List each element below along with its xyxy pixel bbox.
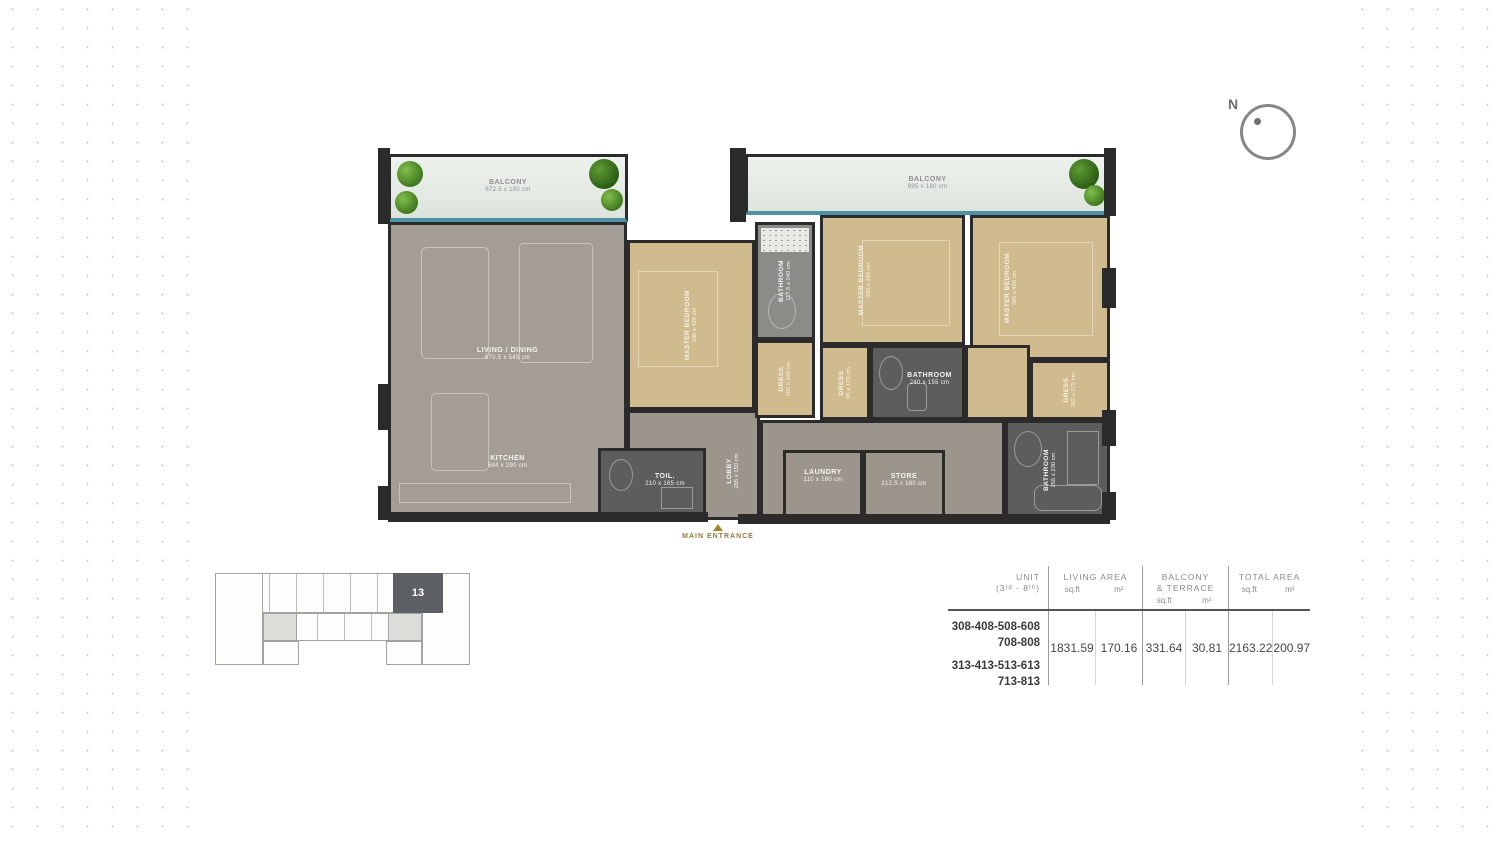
compass-circle-icon [1240, 104, 1296, 160]
unit-numbers: 313-413-513-613 [948, 658, 1040, 674]
room-label-store: STORE 212.5 x 180 cm [866, 473, 942, 487]
north-label: N [1228, 96, 1238, 112]
room-label-dress-3: DRESS 362 x 175 cm [1063, 373, 1077, 408]
room-label-dress-1: DRESS 165 x 240 cm [778, 362, 792, 397]
bed-icon [862, 240, 950, 326]
area-table: UNIT (3ʳᵈ - 8ᵗʰ) LIVING AREA sq.ft m² BA… [948, 566, 1310, 685]
sink-icon [1014, 431, 1042, 467]
shower-tray-icon [661, 487, 693, 509]
wall [738, 514, 1110, 524]
room-label-dress-2: DRESS 95 x 170 cm [838, 367, 852, 399]
key-plan-stub [263, 641, 299, 665]
room-living-dining: LIVING / DINING 672.5 x 545 cm KITCHEN 5… [388, 222, 627, 518]
room-toilet: TOIL. 210 x 165 cm [598, 448, 706, 518]
north-indicator: N [1228, 96, 1318, 166]
key-plan-highlighted-unit: 13 [393, 573, 443, 613]
room-label-laundry: LAUNDRY 110 x 180 cm [786, 469, 860, 483]
plant-icon [1084, 185, 1105, 206]
col-living-m2: m² [1096, 585, 1143, 594]
toilet-icon [768, 293, 796, 329]
dining-table-icon [421, 247, 489, 359]
total-area-sqft-value: 2163.22 [1229, 611, 1272, 685]
unit-numbers: 713-813 [948, 674, 1040, 690]
wall [378, 148, 390, 224]
plant-icon [395, 191, 418, 214]
room-dress-3: DRESS 362 x 175 cm [1030, 360, 1110, 420]
bathtub-icon [1034, 485, 1102, 511]
col-unit-subtitle: (3ʳᵈ - 8ᵗʰ) [948, 583, 1040, 594]
key-plan-shaded-cell [263, 613, 297, 641]
bed-icon [638, 271, 718, 367]
room-master-bedroom-1: MASTER BEDROOM 330 x 420 cm [627, 240, 755, 410]
shower-icon [761, 228, 809, 252]
table-icon [431, 393, 489, 471]
balcony-sqft-value: 331.64 [1143, 611, 1185, 685]
plant-icon [397, 161, 423, 187]
toilet-icon [907, 383, 927, 411]
col-balcony-sqft: sq.ft [1143, 596, 1186, 605]
area-table-row: 308-408-508-608 708-808 313-413-513-613 … [948, 611, 1310, 685]
key-plan-stub [386, 641, 422, 665]
col-unit-title: UNIT [948, 572, 1040, 583]
room-label-toilet: TOIL. 210 x 165 cm [627, 473, 703, 487]
sink-icon [879, 356, 903, 390]
room-dress-2: DRESS 95 x 170 cm [820, 345, 870, 420]
col-balcony-title-2: & TERRACE [1143, 583, 1228, 594]
wall [378, 384, 388, 430]
wall [730, 148, 746, 222]
wall [378, 486, 388, 520]
wall [1104, 148, 1116, 216]
room-label-balcony-right: BALCONY 995 x 180 cm [748, 176, 1107, 190]
key-plan: 13 [215, 565, 480, 673]
main-entrance: MAIN ENTRANCE [678, 524, 758, 540]
col-living-area-title: LIVING AREA [1049, 572, 1142, 583]
wall [1102, 268, 1116, 308]
col-living-sqft: sq.ft [1049, 585, 1096, 594]
key-plan-shaded-cell [388, 613, 422, 641]
main-entrance-label: MAIN ENTRANCE [678, 533, 758, 540]
room-dress-1: DRESS 165 x 240 cm [755, 340, 815, 418]
wall [388, 512, 708, 522]
area-table-header: UNIT (3ʳᵈ - 8ᵗʰ) LIVING AREA sq.ft m² BA… [948, 566, 1310, 611]
room-bathroom-mid: BATHROOM 240 x 155 cm [870, 345, 965, 420]
room-balcony-left: BALCONY 672.5 x 180 cm [388, 154, 628, 222]
compass-dot-icon [1254, 118, 1261, 125]
room-label-kitchen: KITCHEN 584 x 290 cm [391, 455, 624, 469]
plant-icon [589, 159, 619, 189]
room-bathroom-br: BATHROOM 255 x 230 cm [1005, 420, 1110, 520]
total-area-m2-value: 200.97 [1272, 611, 1310, 685]
sofa-icon [519, 243, 593, 363]
vanity-icon [1067, 431, 1099, 485]
sink-icon [609, 459, 633, 491]
room-master-bedroom-2: MASTER BEDROOM 420 x 345 cm [820, 215, 965, 345]
col-balcony-m2: m² [1186, 596, 1229, 605]
bed-icon [999, 242, 1093, 336]
room-balcony-right: BALCONY 995 x 180 cm [745, 154, 1110, 215]
room-bathroom-1: BATHROOM 117.5 x 240 cm [755, 222, 815, 340]
col-total-sqft: sq.ft [1229, 585, 1270, 594]
hallway-bedroom-3 [965, 345, 1030, 420]
living-area-sqft-value: 1831.59 [1049, 611, 1095, 685]
room-master-bedroom-3: MASTER BEDROOM 385 x 480 cm [970, 215, 1110, 360]
page: { "colors": { "wall": "#2b2b2b", "floor_… [0, 0, 1500, 842]
room-laundry: LAUNDRY 110 x 180 cm [783, 450, 863, 518]
wall [1102, 410, 1116, 446]
balcony-m2-value: 30.81 [1185, 611, 1228, 685]
col-balcony-title-1: BALCONY [1143, 572, 1228, 583]
room-store: STORE 212.5 x 180 cm [863, 450, 945, 518]
col-total-m2: m² [1270, 585, 1311, 594]
key-plan-left-wing [215, 573, 263, 665]
kitchen-counter-icon [399, 483, 571, 503]
unit-numbers: 308-408-508-608 [948, 619, 1040, 635]
plant-icon [601, 189, 623, 211]
unit-numbers: 708-808 [948, 635, 1040, 651]
living-area-m2-value: 170.16 [1095, 611, 1142, 685]
col-total-area-title: TOTAL AREA [1229, 572, 1310, 583]
room-label-lobby: LOBBY 285 x 150 cm [726, 453, 740, 488]
floor-plan: BALCONY 672.5 x 180 cm BALCONY 995 x 180… [378, 148, 1118, 540]
entrance-arrow-icon [713, 524, 723, 531]
room-lobby: LOBBY 285 x 150 cm [708, 423, 758, 518]
